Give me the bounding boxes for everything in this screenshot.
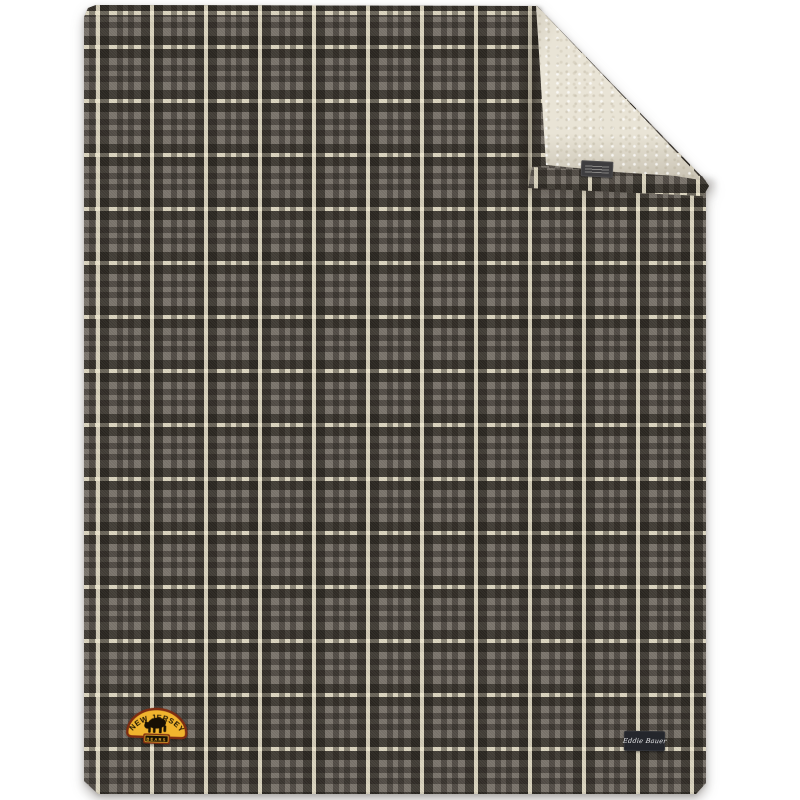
new-jersey-patch: NEW JERSEY BEARS (123, 703, 190, 747)
care-tag-text-lines (585, 164, 609, 173)
care-tag (581, 160, 614, 178)
brand-label: Eddie Bauer (624, 731, 665, 751)
patch-banner-text: BEARS (146, 737, 166, 743)
product-photo: NEW JERSEY BEARS Eddie Bauer (0, 0, 800, 800)
brand-label-text: Eddie Bauer (622, 737, 667, 745)
plaid-blanket: NEW JERSEY BEARS Eddie Bauer (84, 5, 706, 795)
new-jersey-patch-graphic: NEW JERSEY BEARS (123, 703, 190, 747)
